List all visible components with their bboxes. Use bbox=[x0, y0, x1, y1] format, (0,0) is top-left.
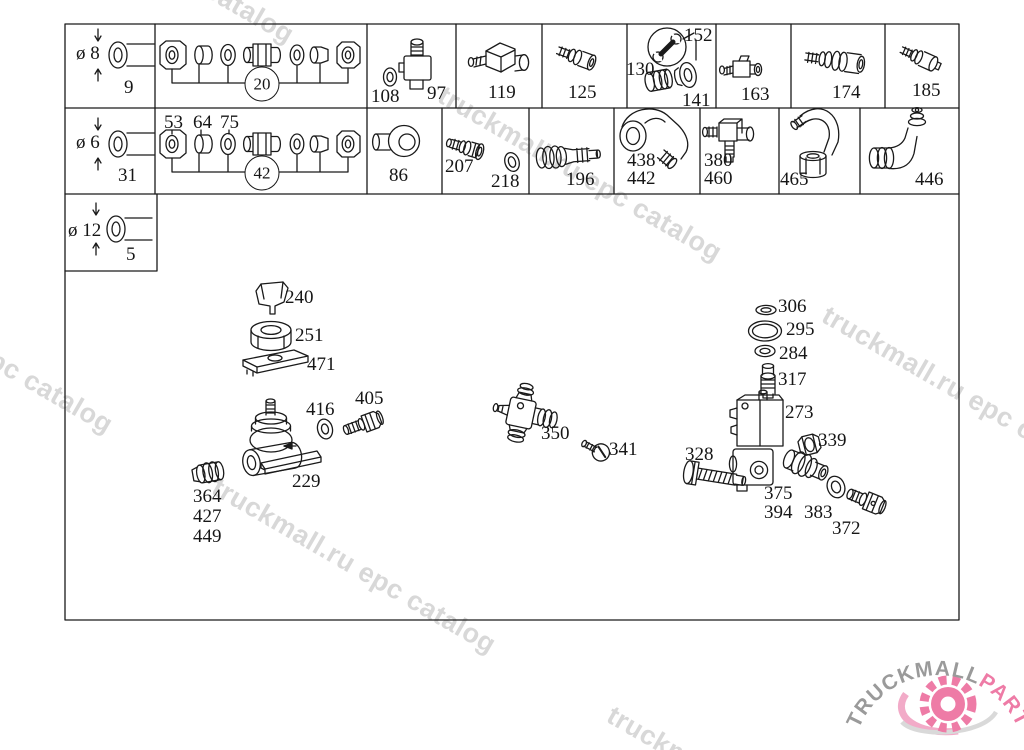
catalog-diagram-page: truckmall.ru epc catalog truckmall.ru ep… bbox=[0, 0, 1024, 750]
cell-dia6-drawing bbox=[95, 118, 154, 170]
part-306-drawing bbox=[756, 305, 776, 314]
cell-dia12-drawing bbox=[93, 203, 152, 255]
cell-380-460-drawing bbox=[703, 119, 754, 162]
part-229-drawing bbox=[241, 399, 321, 477]
cell-119-drawing bbox=[468, 43, 528, 72]
cell-108-97-drawing bbox=[384, 39, 432, 89]
part-383-drawing bbox=[824, 474, 848, 501]
cell-174-drawing bbox=[804, 47, 866, 74]
cell-set-20-drawing bbox=[160, 41, 360, 83]
truckmall-logo: TRUCKMALLPARTS bbox=[838, 638, 1024, 750]
part-405-drawing bbox=[341, 409, 385, 439]
part-341-drawing bbox=[578, 435, 612, 464]
cell-163-drawing bbox=[720, 56, 762, 77]
cell-86-drawing bbox=[373, 126, 420, 157]
cell-125-drawing bbox=[555, 43, 597, 71]
part-251-drawing bbox=[251, 322, 291, 351]
cell-196-drawing bbox=[536, 143, 601, 169]
cell-446-drawing bbox=[869, 108, 925, 169]
part-240-drawing bbox=[256, 282, 288, 314]
part-350-drawing bbox=[487, 378, 563, 450]
part-471-drawing bbox=[243, 350, 308, 376]
part-317-drawing bbox=[761, 364, 775, 398]
cell-set-42-drawing bbox=[160, 130, 360, 172]
part-295-drawing bbox=[749, 321, 782, 341]
cell-207-218-drawing bbox=[445, 135, 522, 174]
cell-185-drawing bbox=[898, 43, 943, 74]
cell-465-drawing bbox=[790, 109, 839, 178]
cell-dia8-drawing bbox=[95, 29, 154, 81]
part-416-drawing bbox=[315, 418, 334, 441]
logo-gear-icon bbox=[924, 680, 972, 728]
cell-438-442-drawing bbox=[620, 109, 688, 170]
cell-130-152-141-drawing bbox=[644, 28, 699, 92]
part-284-drawing bbox=[755, 345, 775, 356]
part-364-drawing bbox=[191, 460, 225, 485]
grid-lines bbox=[65, 24, 959, 620]
part-339-drawing bbox=[797, 433, 822, 457]
part-372-drawing bbox=[844, 485, 888, 517]
